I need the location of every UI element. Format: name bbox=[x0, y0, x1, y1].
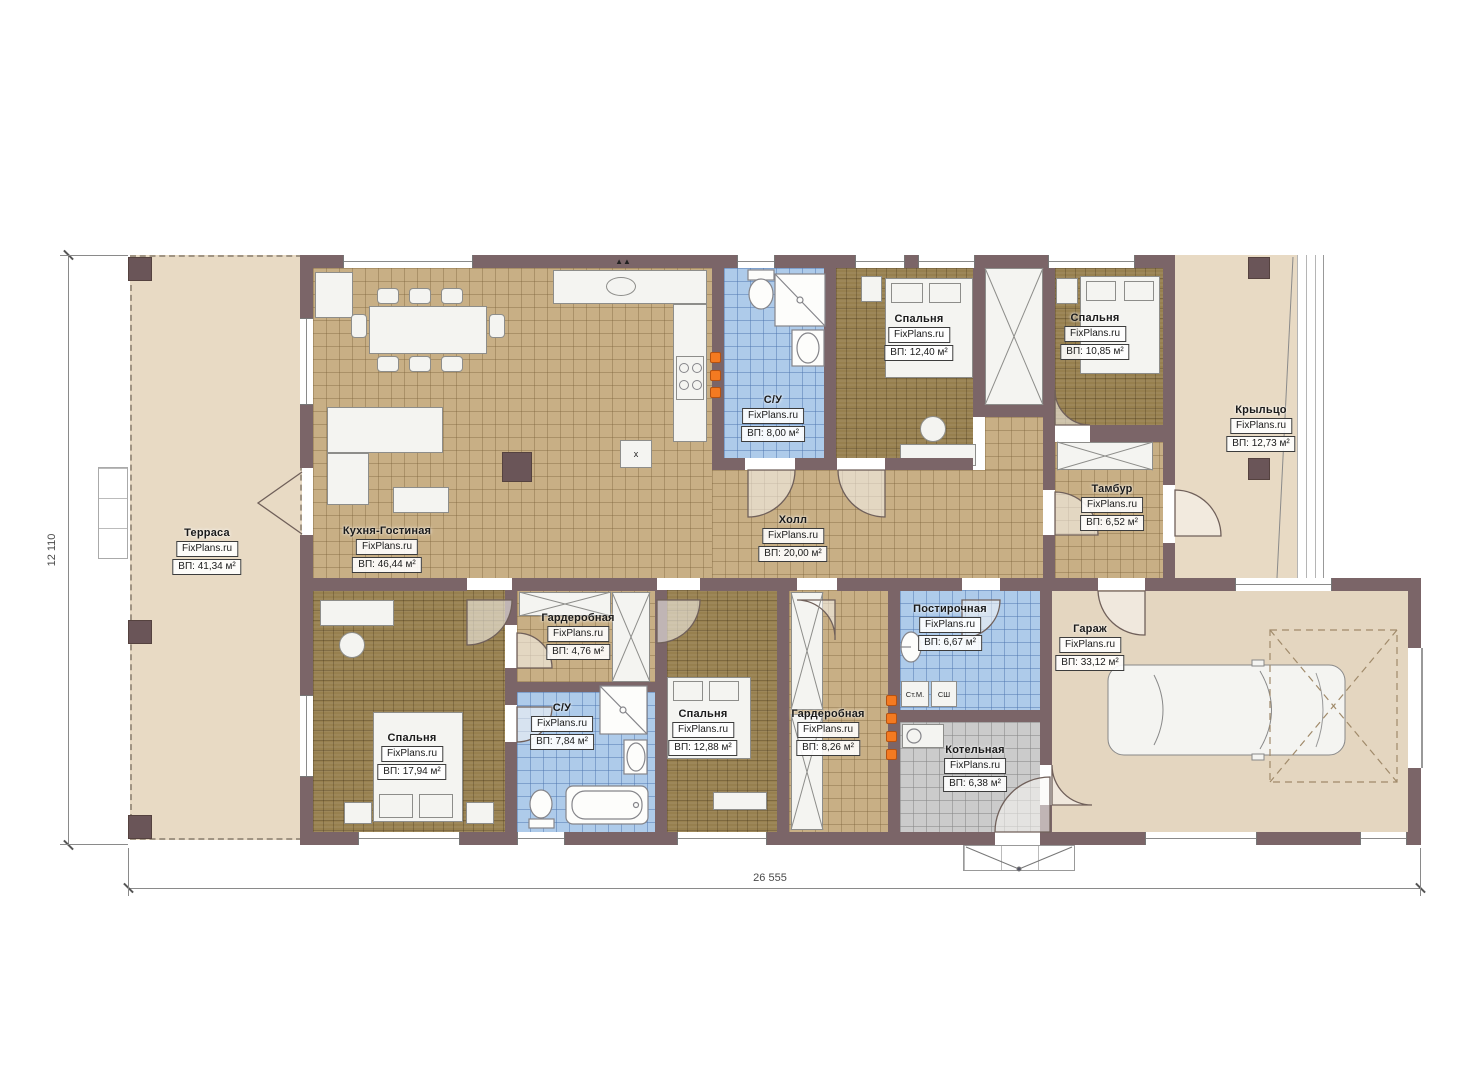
sofa-seat bbox=[327, 407, 443, 453]
window-kitchen-top bbox=[343, 255, 473, 268]
entry-steps bbox=[963, 845, 1075, 871]
window-bathroom2-bottom bbox=[517, 832, 565, 845]
room-label-terrace: Терраса FixPlans.ru ВП: 41,34 м² bbox=[172, 527, 241, 575]
nightstand bbox=[466, 802, 494, 824]
watermark: FixPlans.ru bbox=[176, 541, 238, 557]
desk bbox=[320, 600, 394, 626]
nightstand bbox=[344, 802, 372, 824]
wall-bath1-right bbox=[824, 268, 836, 470]
nightstand bbox=[1056, 278, 1078, 304]
pillow bbox=[929, 283, 961, 303]
room-label-porch: Крыльцо FixPlans.ru ВП: 12,73 м² bbox=[1226, 404, 1295, 452]
dim-line-horizontal bbox=[128, 888, 1420, 889]
window-bedroom2-top bbox=[1048, 255, 1135, 268]
drying-cabinet-label: СШ bbox=[931, 681, 957, 707]
room-area: ВП: 6,38 м² bbox=[943, 776, 1007, 792]
wall-bedroom3-right-3 bbox=[505, 742, 517, 832]
pillow bbox=[673, 681, 703, 701]
dim-ext-right bbox=[1420, 848, 1421, 896]
room-area: ВП: 6,67 м² bbox=[918, 635, 982, 651]
wall-mid-1 bbox=[300, 578, 467, 591]
dining-chair bbox=[409, 356, 431, 372]
wall-bedroom2-bottom bbox=[1090, 425, 1163, 442]
outlet-icon bbox=[886, 695, 897, 706]
room-label-bathroom-1: С/У FixPlans.ru ВП: 8,00 м² bbox=[741, 394, 805, 442]
wall-bottom-4 bbox=[765, 832, 995, 845]
wall-garage-right-upper bbox=[1408, 578, 1421, 648]
watermark: FixPlans.ru bbox=[1059, 637, 1121, 653]
nightstand bbox=[861, 276, 882, 302]
room-label-boiler: Котельная FixPlans.ru ВП: 6,38 м² bbox=[943, 744, 1007, 792]
terrace-post bbox=[128, 257, 152, 281]
watermark: FixPlans.ru bbox=[531, 716, 593, 732]
porch-post bbox=[1248, 458, 1270, 480]
wardrobe-cabinet bbox=[612, 592, 650, 682]
wall-right-upper bbox=[1163, 255, 1175, 485]
sofa-corner bbox=[327, 453, 369, 505]
dining-table bbox=[369, 306, 487, 354]
room-label-hall: Холл FixPlans.ru ВП: 20,00 м² bbox=[758, 514, 827, 562]
room-area: ВП: 8,00 м² bbox=[741, 426, 805, 442]
watermark: FixPlans.ru bbox=[381, 746, 443, 762]
watermark: FixPlans.ru bbox=[547, 626, 609, 642]
terrace-post bbox=[128, 620, 152, 644]
dining-chair bbox=[409, 288, 431, 304]
office-chair bbox=[339, 632, 365, 658]
room-label-bathroom-2: С/У FixPlans.ru ВП: 7,84 м² bbox=[530, 702, 594, 750]
room-label-bedroom-1: Спальня FixPlans.ru ВП: 12,40 м² bbox=[884, 313, 953, 361]
window-garage-top bbox=[1235, 578, 1332, 591]
kitchen-cabinet bbox=[315, 272, 353, 318]
pillow bbox=[379, 794, 413, 818]
wall-hall-top-3 bbox=[885, 458, 973, 470]
watermark: FixPlans.ru bbox=[797, 722, 859, 738]
room-label-bedroom-3: Спальня FixPlans.ru ВП: 17,94 м² bbox=[377, 732, 446, 780]
wall-garage-right-lower bbox=[1408, 768, 1421, 845]
porch-post bbox=[1248, 257, 1270, 279]
terrace-step bbox=[98, 467, 128, 559]
watermark: FixPlans.ru bbox=[1230, 418, 1292, 434]
window-bathroom1-top bbox=[737, 255, 775, 268]
dim-ext-bottom bbox=[60, 844, 128, 845]
washing-machine-label: Ст.М. bbox=[901, 681, 929, 707]
dining-chair bbox=[441, 288, 463, 304]
window-kitchen-left bbox=[300, 318, 313, 405]
wall-hall-top-2 bbox=[795, 458, 837, 470]
room-area: ВП: 8,26 м² bbox=[796, 740, 860, 756]
watermark: FixPlans.ru bbox=[1064, 326, 1126, 342]
vent-icon: ▲▲ bbox=[608, 256, 638, 266]
room-area: ВП: 41,34 м² bbox=[172, 559, 241, 575]
watermark: FixPlans.ru bbox=[888, 327, 950, 343]
dining-chair bbox=[377, 288, 399, 304]
dining-chair bbox=[377, 356, 399, 372]
outlet-icon bbox=[710, 352, 721, 363]
window-garage-bottom-a bbox=[1145, 832, 1257, 845]
dim-width-label: 26 555 bbox=[753, 872, 787, 884]
wardrobe-cabinet bbox=[791, 592, 823, 710]
room-area: ВП: 12,40 м² bbox=[884, 345, 953, 361]
wall-bath2-right bbox=[655, 590, 667, 832]
wardrobe-cabinet bbox=[985, 268, 1043, 405]
wall-hall-top-1 bbox=[712, 458, 745, 470]
watermark: FixPlans.ru bbox=[672, 722, 734, 738]
window-bedroom1-top-b bbox=[918, 255, 975, 268]
wall-vestibule-left-lower bbox=[1043, 535, 1055, 578]
room-area: ВП: 17,94 м² bbox=[377, 764, 446, 780]
room-area: ВП: 33,12 м² bbox=[1055, 655, 1124, 671]
window-garage-bottom-b bbox=[1360, 832, 1407, 845]
kitchen-stove bbox=[676, 356, 704, 400]
room-label-wardrobe-1: Гардеробная FixPlans.ru ВП: 4,76 м² bbox=[541, 612, 614, 660]
interior-column bbox=[502, 452, 532, 482]
wall-laundry-boiler-divider bbox=[888, 710, 1040, 722]
wall-garage-left-upper bbox=[1040, 578, 1052, 765]
wall-wardrobe1-bath2-divider bbox=[505, 682, 667, 692]
window-bedroom1-top-a bbox=[855, 255, 905, 268]
room-label-bedroom-4: Спальня FixPlans.ru ВП: 12,88 м² bbox=[668, 708, 737, 756]
room-area: ВП: 46,44 м² bbox=[352, 557, 421, 573]
outlet-icon bbox=[886, 713, 897, 724]
watermark: FixPlans.ru bbox=[944, 758, 1006, 774]
tv-console bbox=[713, 792, 767, 810]
room-area: ВП: 7,84 м² bbox=[530, 734, 594, 750]
room-area: ВП: 12,73 м² bbox=[1226, 436, 1295, 452]
coffee-table bbox=[393, 487, 449, 513]
dim-ext-left bbox=[128, 848, 129, 896]
room-label-kitchen-living: Кухня-Гостиная FixPlans.ru ВП: 46,44 м² bbox=[343, 525, 431, 573]
wall-bath1-left bbox=[712, 268, 724, 470]
hall-nook-floor bbox=[985, 417, 1043, 470]
boiler-unit bbox=[902, 724, 944, 748]
pillow bbox=[419, 794, 453, 818]
watermark: FixPlans.ru bbox=[742, 408, 804, 424]
dim-line-vertical bbox=[68, 255, 69, 845]
watermark: FixPlans.ru bbox=[1081, 497, 1143, 513]
room-area: ВП: 4,76 м² bbox=[546, 644, 610, 660]
wall-bedroom3-right-1 bbox=[505, 590, 517, 625]
dim-ext-top bbox=[60, 255, 128, 256]
watermark: FixPlans.ru bbox=[919, 617, 981, 633]
pillow bbox=[1086, 281, 1116, 301]
room-area: ВП: 6,52 м² bbox=[1080, 515, 1144, 531]
kitchen-sink bbox=[606, 277, 636, 296]
watermark: FixPlans.ru bbox=[762, 528, 824, 544]
wall-bottom-3 bbox=[563, 832, 677, 845]
terrace-post bbox=[128, 815, 152, 839]
outlet-icon bbox=[886, 731, 897, 742]
outlet-icon bbox=[710, 370, 721, 381]
porch-overhang-hatch bbox=[1297, 255, 1324, 578]
window-bedroom3-left bbox=[300, 695, 313, 777]
dining-chair bbox=[351, 314, 367, 338]
wall-bedroom2-left-upper bbox=[1043, 268, 1055, 490]
wall-closet-left bbox=[973, 268, 985, 417]
dining-chair bbox=[441, 356, 463, 372]
room-label-wardrobe-2: Гардеробная FixPlans.ru ВП: 8,26 м² bbox=[791, 708, 864, 756]
room-area: ВП: 10,85 м² bbox=[1060, 344, 1129, 360]
room-area: ВП: 12,88 м² bbox=[668, 740, 737, 756]
room-label-vestibule: Тамбур FixPlans.ru ВП: 6,52 м² bbox=[1080, 483, 1144, 531]
pillow bbox=[1124, 281, 1154, 301]
window-bedroom3-bottom bbox=[358, 832, 460, 845]
kitchen-island-label: x bbox=[620, 440, 652, 468]
watermark: FixPlans.ru bbox=[356, 539, 418, 555]
wall-bottom-1 bbox=[300, 832, 358, 845]
outlet-icon bbox=[710, 387, 721, 398]
wardrobe-cabinet bbox=[1057, 442, 1153, 470]
outlet-icon bbox=[886, 749, 897, 760]
dining-chair bbox=[489, 314, 505, 338]
room-area: ВП: 20,00 м² bbox=[758, 546, 827, 562]
room-label-garage: Гараж FixPlans.ru ВП: 33,12 м² bbox=[1055, 623, 1124, 671]
room-label-laundry: Постирочная FixPlans.ru ВП: 6,67 м² bbox=[913, 603, 987, 651]
room-label-bedroom-2: Спальня FixPlans.ru ВП: 10,85 м² bbox=[1060, 312, 1129, 360]
office-chair bbox=[920, 416, 946, 442]
window-bedroom4-bottom bbox=[677, 832, 767, 845]
pillow bbox=[891, 283, 923, 303]
wall-bedroom4-right bbox=[777, 590, 789, 832]
pillow bbox=[709, 681, 739, 701]
floor-plan: Ст.М. СШ x ▲▲ Терраса FixPlans.ru ВП: 41… bbox=[0, 0, 1474, 1080]
wall-mid-2 bbox=[512, 578, 657, 591]
dim-height-label: 12 110 bbox=[46, 534, 58, 567]
